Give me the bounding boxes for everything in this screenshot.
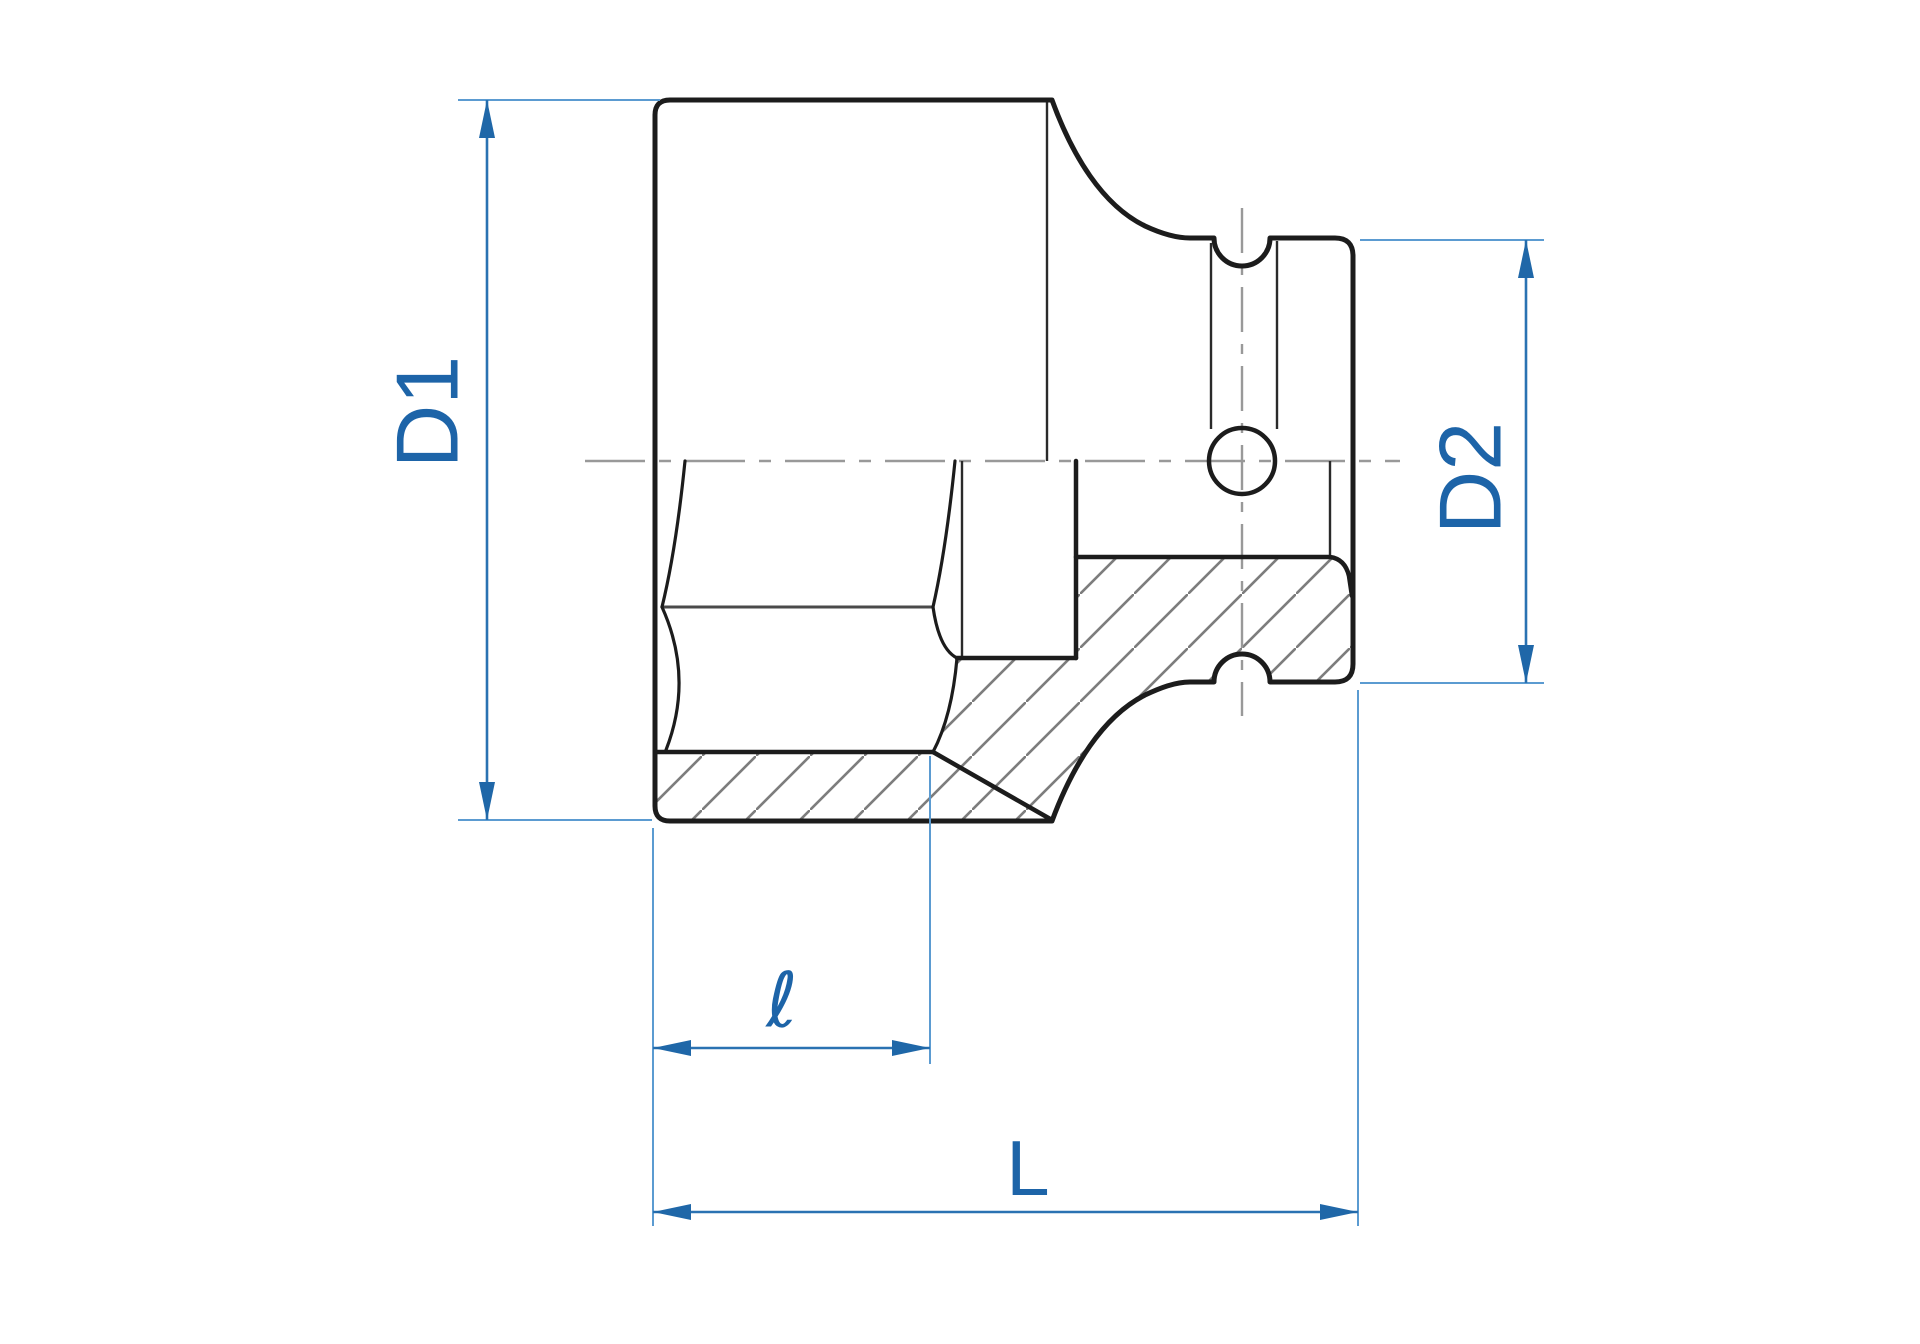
hex-corner-curve-lower-right [933,607,957,658]
hex-depth-arrow-right-icon [892,1040,930,1056]
length-label: L [1006,1124,1049,1212]
hex-depth-label: ℓ [764,956,797,1045]
hex-corner-curve-lower-left [662,607,679,750]
hex-corner-curve-upper-right [933,461,955,607]
d1-arrow-down-icon [479,782,495,820]
length-arrow-left-icon [653,1204,691,1220]
hex-corner-curve-upper-left [662,461,685,607]
d2-arrow-up-icon [1518,240,1534,278]
d2-label: D2 [1421,422,1520,535]
drawing-canvas: D1 D2 ℓ L [0,0,1920,1344]
d2-arrow-down-icon [1518,645,1534,683]
length-arrow-right-icon [1320,1204,1358,1220]
d1-arrow-up-icon [479,100,495,138]
socket-technical-drawing: D1 D2 ℓ L [0,0,1920,1344]
section-hatching [656,557,1352,821]
hatched-material-region [656,557,1352,821]
dimension-hex-depth: ℓ [653,756,930,1226]
d1-label: D1 [378,356,477,469]
hex-depth-arrow-left-icon [653,1040,691,1056]
